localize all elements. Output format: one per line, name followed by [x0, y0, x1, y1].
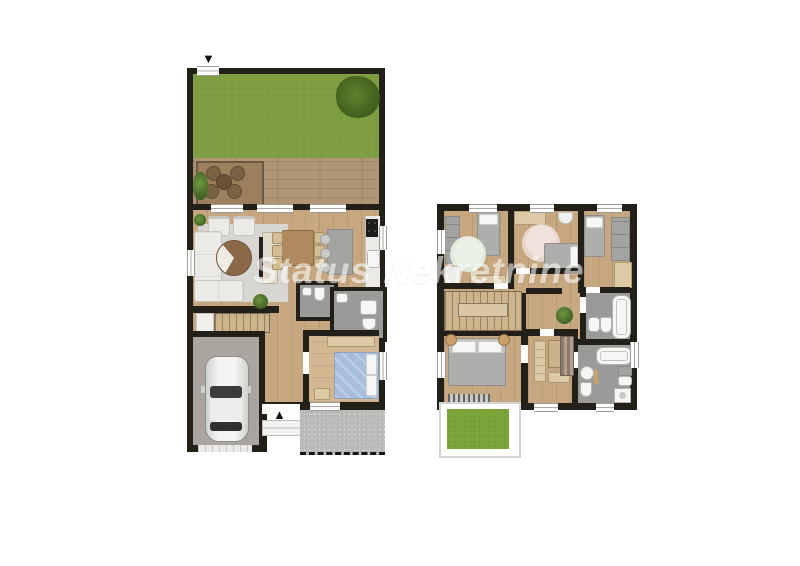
car-rear-window: [210, 422, 242, 431]
interior-wall: [193, 306, 279, 313]
car-mirror: [247, 386, 251, 393]
bar-stool: [320, 234, 331, 245]
wardrobe: [611, 217, 630, 261]
window: [379, 352, 387, 380]
bathroom-shelf: [336, 293, 348, 303]
nightstand: [498, 334, 510, 346]
garage-door: [198, 445, 252, 452]
radiator: [448, 394, 490, 402]
coffee-table: [216, 240, 252, 276]
bathtub: [612, 295, 631, 339]
door-opening: [303, 352, 309, 374]
car-windshield: [210, 386, 242, 398]
nightstand: [445, 334, 457, 346]
window: [630, 342, 639, 368]
dining-chair: [272, 232, 283, 244]
balcony-grass: [447, 409, 509, 449]
entrance-steps: [262, 420, 302, 436]
window: [187, 250, 195, 276]
door-opening: [540, 329, 554, 336]
pillow: [479, 214, 498, 225]
toilet: [580, 382, 592, 397]
bathroom-sink: [588, 317, 600, 332]
washing-machine: [614, 388, 631, 403]
pillow: [586, 217, 603, 228]
window: [310, 402, 340, 411]
sofa-chaise: [194, 280, 244, 302]
plant: [556, 307, 573, 324]
garden-gate: [197, 66, 219, 76]
watermark: Status Nekretnine: [253, 250, 585, 292]
staircase: [214, 313, 270, 333]
car-roof: [210, 398, 242, 420]
window: [379, 226, 387, 250]
bathtub: [596, 347, 632, 365]
garden-tree: [336, 76, 380, 118]
window: [211, 204, 243, 213]
door-opening: [521, 345, 528, 363]
nightstand: [314, 388, 330, 400]
interior-wall: [521, 329, 528, 403]
cooktop: [366, 219, 378, 237]
window: [257, 204, 293, 213]
toilet: [362, 318, 376, 330]
north-arrow-icon: ▼: [202, 52, 215, 65]
hall-closet: [196, 313, 214, 333]
window: [530, 204, 554, 213]
window: [469, 204, 497, 213]
outdoor-table: [216, 174, 232, 190]
towel-rail: [594, 370, 598, 384]
plant: [194, 214, 206, 226]
bedroom-wardrobe: [327, 336, 375, 347]
shelf: [614, 262, 632, 288]
bathroom-sink: [580, 366, 594, 380]
pillow: [366, 375, 377, 396]
window: [437, 352, 446, 378]
toilet: [600, 317, 612, 333]
floorplan-image: ▼: [0, 0, 800, 566]
bathroom-shelf: [618, 376, 632, 386]
stair-landing: [458, 303, 508, 317]
patio: [300, 410, 385, 455]
window: [596, 403, 614, 412]
outdoor-seat: [230, 166, 245, 181]
wardrobe-striped: [560, 336, 574, 376]
bathroom-sink: [360, 300, 377, 315]
car-mirror: [201, 386, 205, 393]
armchair: [233, 216, 255, 236]
pillow: [366, 354, 377, 375]
window: [310, 204, 346, 213]
window: [597, 204, 622, 213]
shelf: [514, 211, 546, 225]
plant: [253, 294, 268, 309]
walk-in-closet-shelf: [534, 340, 546, 382]
deck-shrub: [193, 172, 208, 200]
window: [534, 403, 558, 412]
